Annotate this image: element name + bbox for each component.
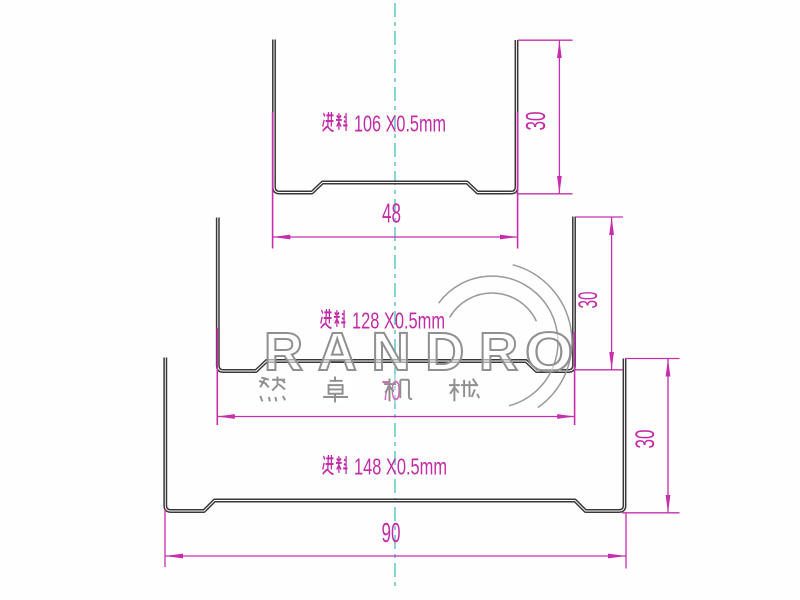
svg-text:30: 30 (573, 292, 603, 309)
svg-text:30: 30 (520, 112, 551, 131)
svg-text:106 X0.5mm: 106 X0.5mm (354, 111, 446, 137)
svg-text:48: 48 (382, 198, 401, 229)
svg-text:90: 90 (382, 517, 401, 548)
svg-text:O: O (525, 320, 573, 383)
svg-text:148 X0.5mm: 148 X0.5mm (354, 454, 447, 480)
svg-text:128 X0.5mm: 128 X0.5mm (352, 308, 445, 334)
svg-text:30: 30 (630, 430, 660, 449)
